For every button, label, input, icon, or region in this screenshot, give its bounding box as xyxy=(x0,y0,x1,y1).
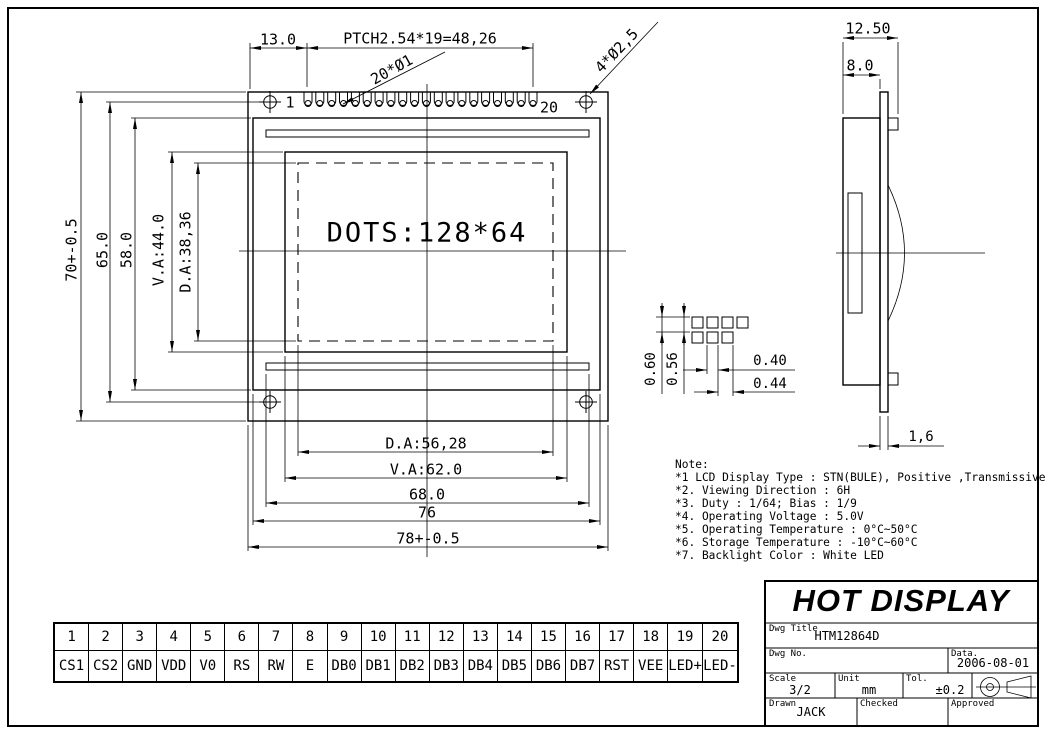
projection-symbol-icon xyxy=(976,676,1036,698)
pin-name-cell: LED- xyxy=(703,651,737,681)
dwg-title-label: Dwg Title xyxy=(769,625,818,634)
dim-height-holes: 65.0 xyxy=(96,232,111,268)
pin-table: 1234567891011121314151617181920CS1CS2GND… xyxy=(53,622,739,683)
pin-name-cell: GND xyxy=(123,651,157,681)
pin-name-cell: RW xyxy=(259,651,293,681)
note-line: *5. Operating Temperature : 0°C~50°C xyxy=(675,523,1045,536)
pin-name-cell: DB5 xyxy=(498,651,532,681)
date-value: 2006-08-01 xyxy=(957,657,1029,669)
pin-name-cell: VEE xyxy=(634,651,668,681)
dim-height-va: V.A:44.0 xyxy=(152,214,167,286)
dim-dot-pitch-v: 0.60 xyxy=(644,352,658,386)
note-line: *3. Duty : 1/64; Bias : 1/9 xyxy=(675,497,1045,510)
pin-number-cell: 17 xyxy=(600,624,634,651)
dwg-no-label: Dwg No. xyxy=(769,650,807,659)
side-view xyxy=(836,38,985,450)
dim-pin-offset: 13.0 xyxy=(260,33,296,48)
pin-last-label: 20 xyxy=(540,101,558,116)
dim-width-da: D.A:56,28 xyxy=(385,437,466,452)
note-line: *1 LCD Display Type : STN(BULE), Positiv… xyxy=(675,471,1045,484)
pin-number-cell: 15 xyxy=(532,624,566,651)
company-logo-text: HOT DISPLAY xyxy=(792,583,1009,619)
pin-number-cell: 11 xyxy=(396,624,430,651)
pin-number-cell: 1 xyxy=(55,624,89,651)
unit-value: mm xyxy=(862,684,876,696)
pin-name-cell: DB3 xyxy=(430,651,464,681)
pin-number-cell: 14 xyxy=(498,624,532,651)
scale-value: 3/2 xyxy=(789,684,811,696)
pin-number-cell: 6 xyxy=(225,624,259,651)
dim-total-depth: 12.50 xyxy=(845,22,890,37)
pin-number-cell: 2 xyxy=(89,624,123,651)
pin-name-cell: E xyxy=(293,651,327,681)
dim-dot-pitch-h: 0.44 xyxy=(753,377,787,391)
approved-label: Approved xyxy=(951,700,994,709)
dim-width-va: V.A:62.0 xyxy=(390,463,462,478)
pin-name-cell: DB7 xyxy=(566,651,600,681)
pin-number-cell: 10 xyxy=(362,624,396,651)
drawn-label: Drawn xyxy=(769,700,796,709)
pin-name-cell: DB0 xyxy=(328,651,362,681)
display-dots-text: DOTS:128*64 xyxy=(327,220,528,247)
note-line: *4. Operating Voltage : 5.0V xyxy=(675,510,1045,523)
dim-height-overall: 70+-0.5 xyxy=(65,218,80,281)
tol-label: Tol. xyxy=(906,675,928,684)
dimension-lines xyxy=(81,22,658,547)
pin-name-cell: DB4 xyxy=(464,651,498,681)
pin-name-cell: RST xyxy=(600,651,634,681)
mounting-holes xyxy=(259,91,597,413)
dim-pitch: PTCH2.54*19=48,26 xyxy=(343,32,497,47)
drawn-value: JACK xyxy=(797,706,826,718)
unit-label: Unit xyxy=(838,675,860,684)
pin-name-cell: DB2 xyxy=(396,651,430,681)
pin-number-cell: 3 xyxy=(123,624,157,651)
dim-height-da: D.A:38,36 xyxy=(179,211,194,292)
pin-first-label: 1 xyxy=(285,96,294,111)
dim-dot-width: 0.40 xyxy=(753,354,787,368)
pin-number-cell: 12 xyxy=(430,624,464,651)
note-line: *7. Backlight Color : White LED xyxy=(675,549,1045,562)
pin-name-cell: DB6 xyxy=(532,651,566,681)
dim-pcb-thickness: 1,6 xyxy=(908,430,933,444)
pin-number-cell: 19 xyxy=(668,624,703,651)
dot-area-dashed-outline xyxy=(298,163,553,341)
dim-width-overall: 78+-0.5 xyxy=(396,532,459,547)
dim-body-depth: 8.0 xyxy=(846,59,873,74)
note-line: *2. Viewing Direction : 6H xyxy=(675,484,1045,497)
pin-name-cell: VDD xyxy=(157,651,191,681)
engineering-drawing-page: 13.0 PTCH2.54*19=48,26 20*Ø1 4*Ø2,5 1 20… xyxy=(0,0,1047,735)
note-block: Note:*1 LCD Display Type : STN(BULE), Po… xyxy=(675,458,1045,562)
pin-number-cell: 16 xyxy=(566,624,600,651)
pin-name-cell: V0 xyxy=(191,651,225,681)
pin-number-cell: 8 xyxy=(293,624,327,651)
dwg-title-value: HTM12864D xyxy=(814,630,879,642)
pin-number-cell: 9 xyxy=(328,624,362,651)
pin-number-cell: 7 xyxy=(259,624,293,651)
pin-number-cell: 4 xyxy=(157,624,191,651)
pin-name-cell: CS1 xyxy=(55,651,89,681)
dim-width-slot: 68.0 xyxy=(409,488,445,503)
pin-number-cell: 13 xyxy=(464,624,498,651)
pin-number-cell: 5 xyxy=(191,624,225,651)
dim-width-frame: 76 xyxy=(418,506,436,521)
pin-name-cell: LED+ xyxy=(668,651,703,681)
pin-number-cell: 18 xyxy=(634,624,668,651)
extension-lines xyxy=(76,43,608,551)
dim-dot-height: 0.56 xyxy=(666,352,680,386)
pin-number-cell: 20 xyxy=(703,624,737,651)
tol-value: ±0.2 xyxy=(936,684,965,696)
connector-pins xyxy=(304,92,537,107)
pin-name-cell: DB1 xyxy=(362,651,396,681)
dim-height-frame: 58.0 xyxy=(120,232,135,268)
checked-label: Checked xyxy=(860,700,898,709)
note-line: *6. Storage Temperature : -10°C~60°C xyxy=(675,536,1045,549)
pin-name-cell: CS2 xyxy=(89,651,123,681)
note-line: Note: xyxy=(675,458,1045,471)
pin-name-cell: RS xyxy=(225,651,259,681)
